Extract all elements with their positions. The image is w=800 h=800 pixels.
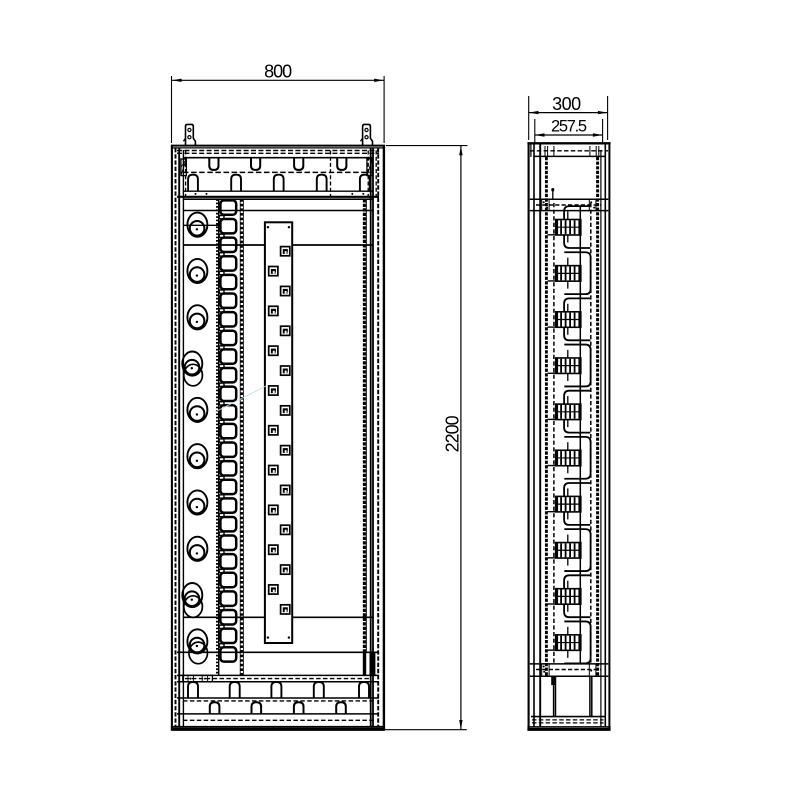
svg-text:800: 800 [264,62,292,82]
svg-text:300: 300 [552,94,581,114]
svg-text:2200: 2200 [443,415,463,452]
svg-text:257.5: 257.5 [551,117,587,135]
